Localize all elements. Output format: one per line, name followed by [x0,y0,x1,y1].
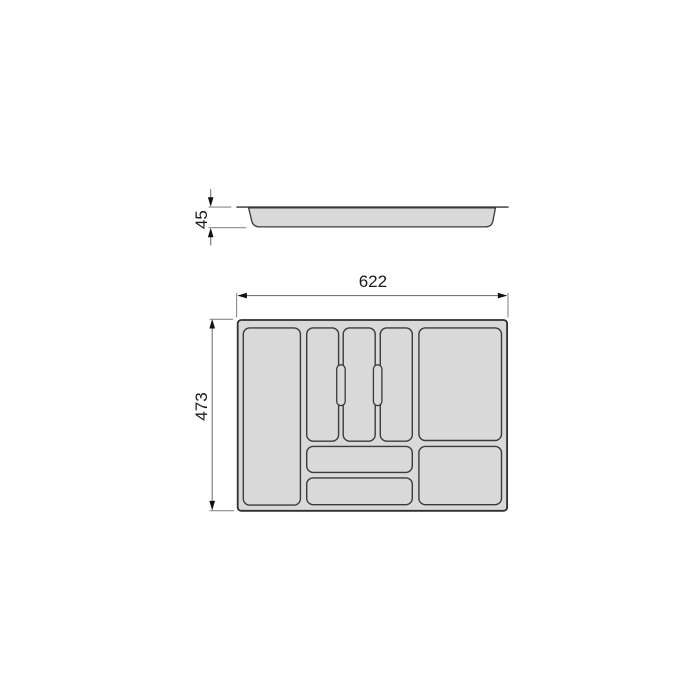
svg-text:473: 473 [192,392,211,420]
svg-text:45: 45 [192,210,211,229]
svg-text:622: 622 [359,272,387,291]
